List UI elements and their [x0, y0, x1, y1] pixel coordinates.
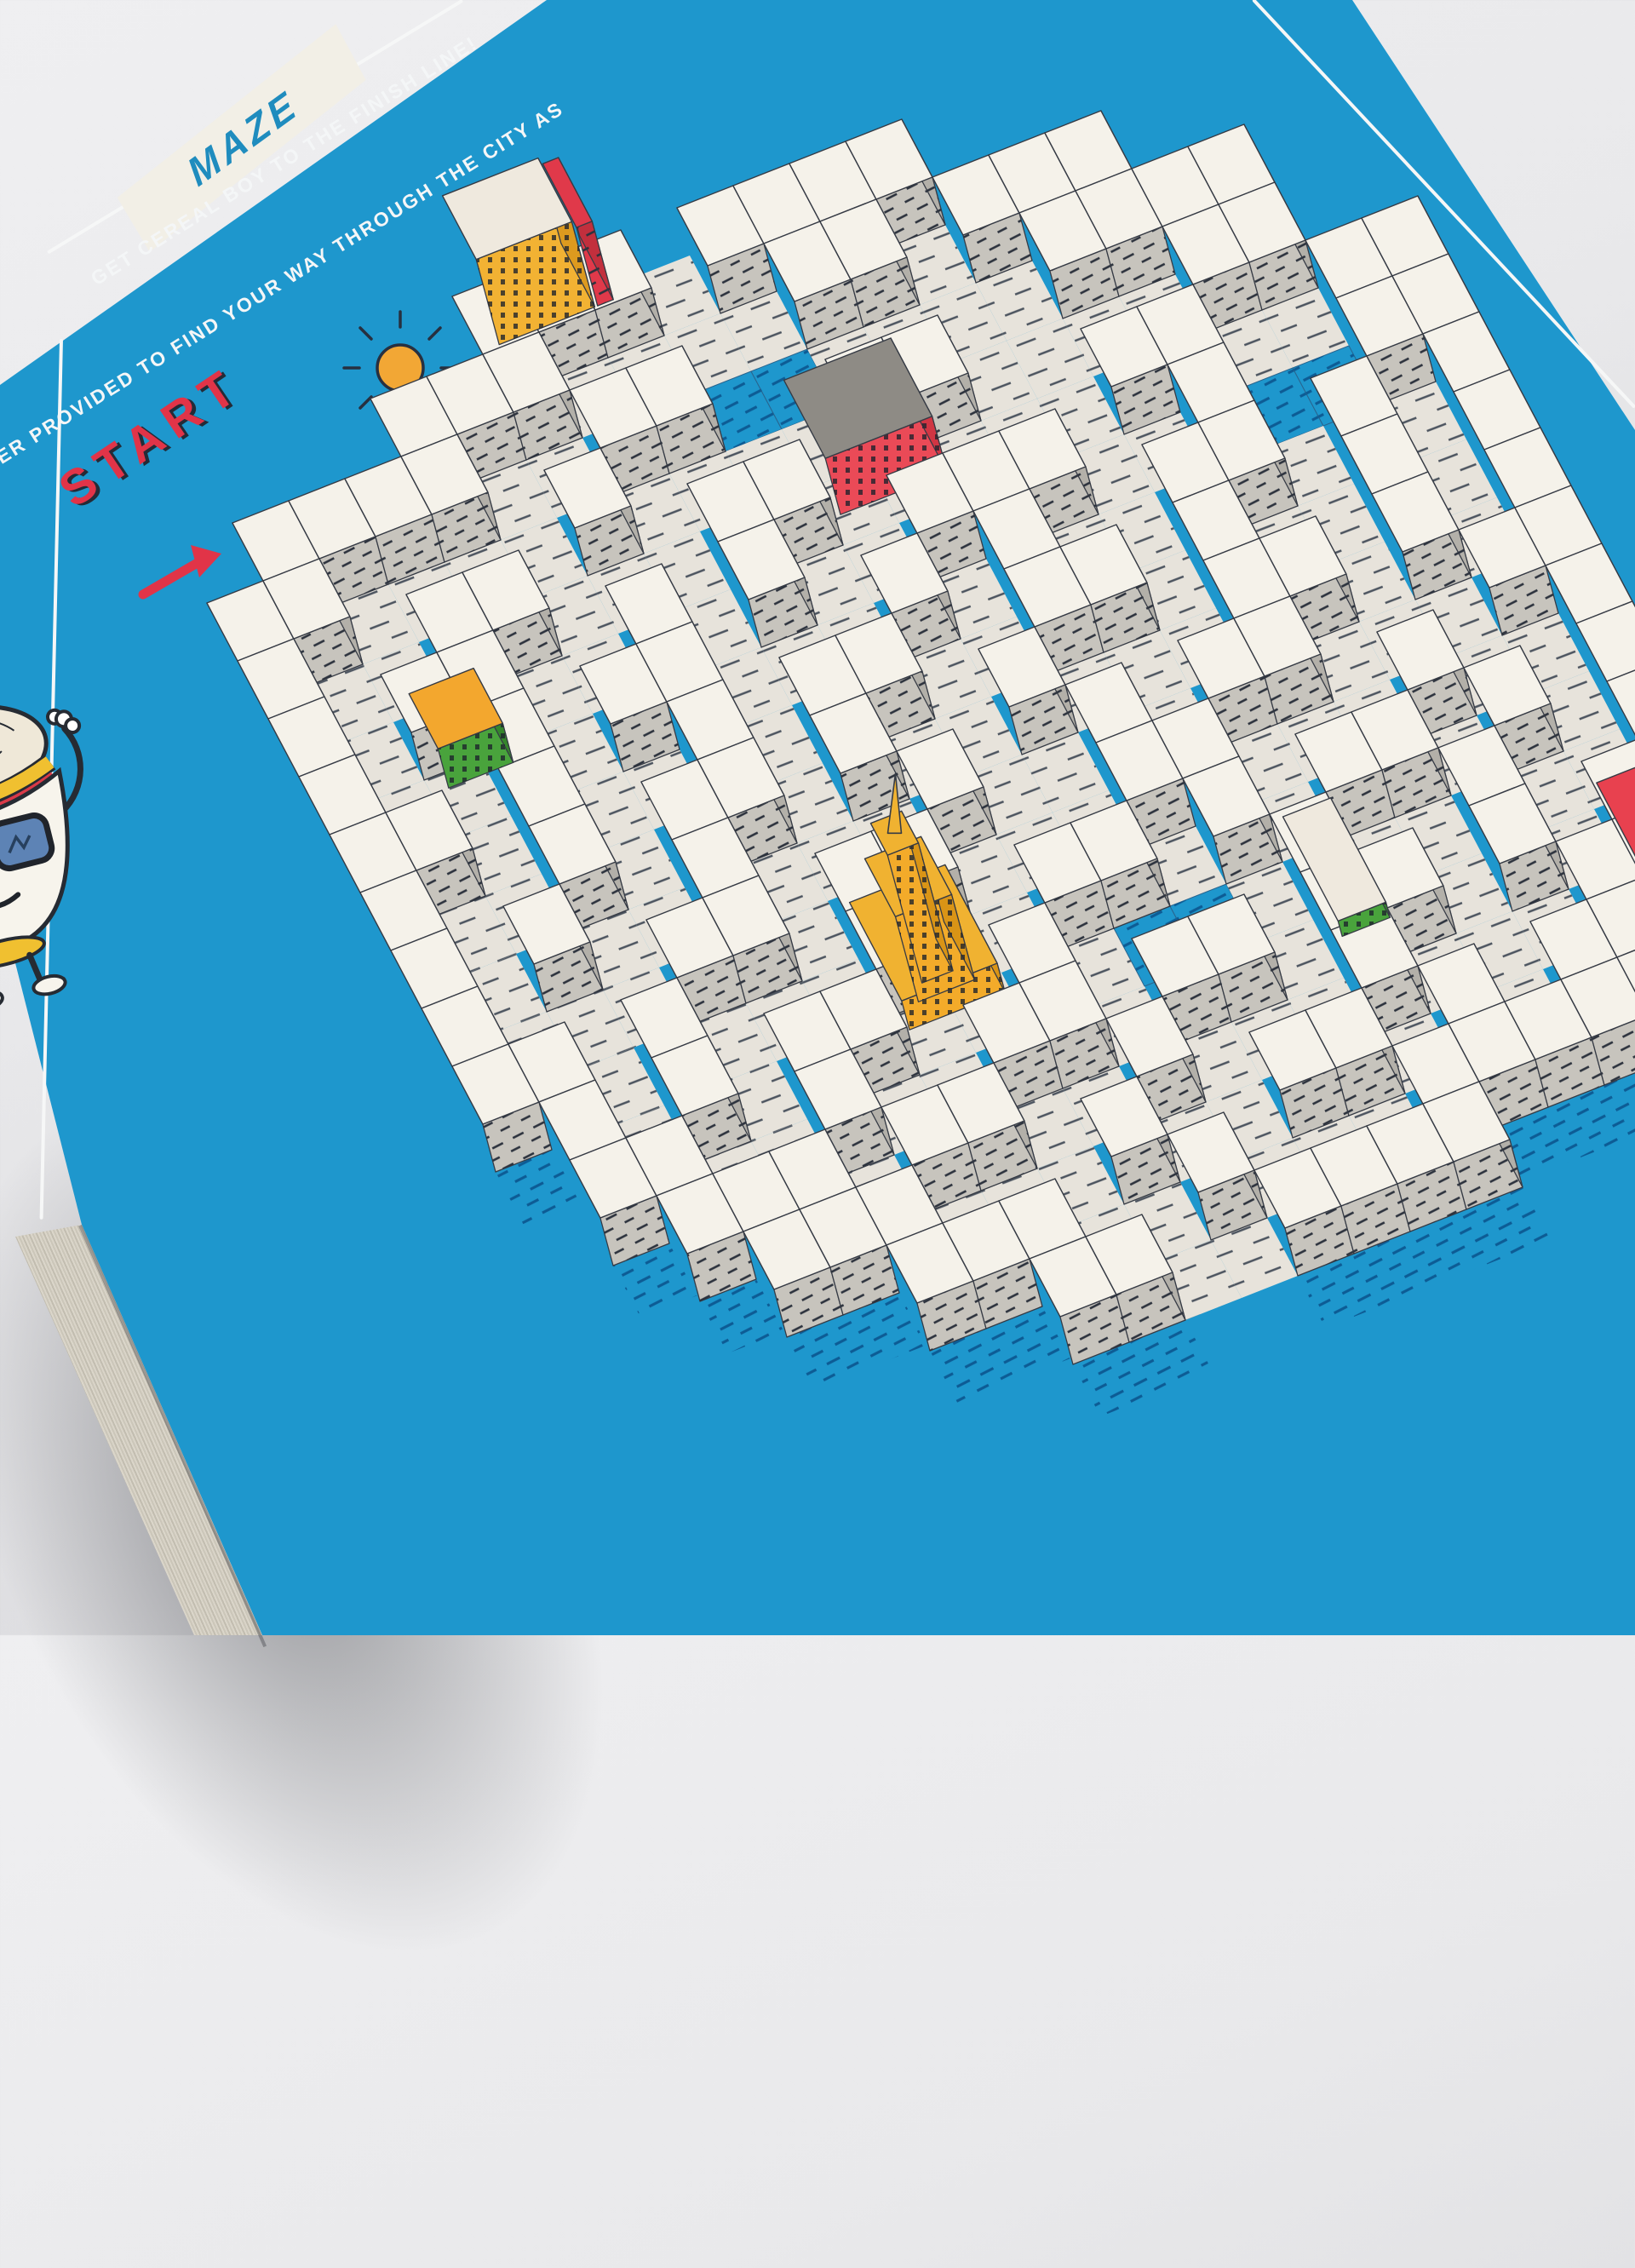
- maze-illustration: [0, 0, 1635, 1635]
- start-arrow-icon: [135, 538, 228, 606]
- glove: [46, 705, 80, 738]
